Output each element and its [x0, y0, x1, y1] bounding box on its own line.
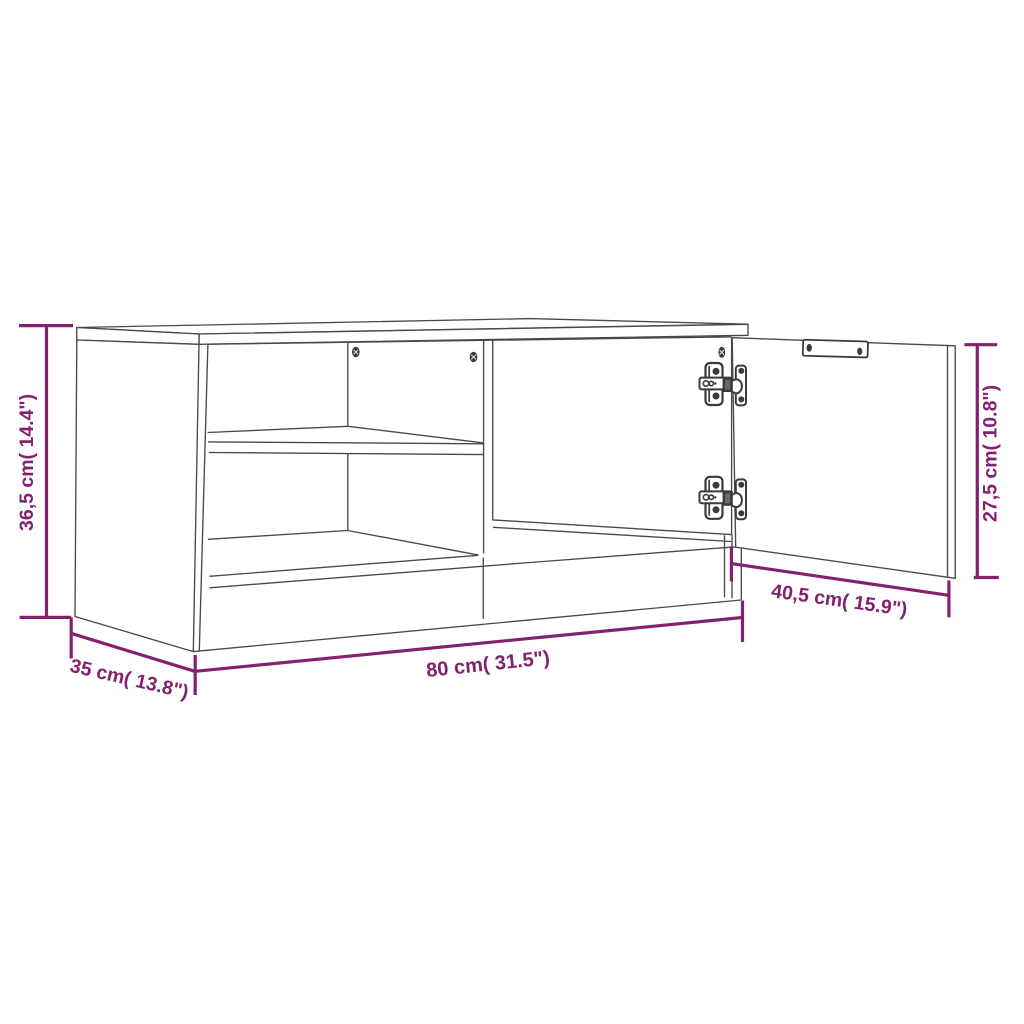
svg-text:27,5 cm( 10.8"): 27,5 cm( 10.8")	[980, 385, 1002, 522]
svg-text:36,5 cm( 14.4"): 36,5 cm( 14.4")	[16, 394, 38, 531]
